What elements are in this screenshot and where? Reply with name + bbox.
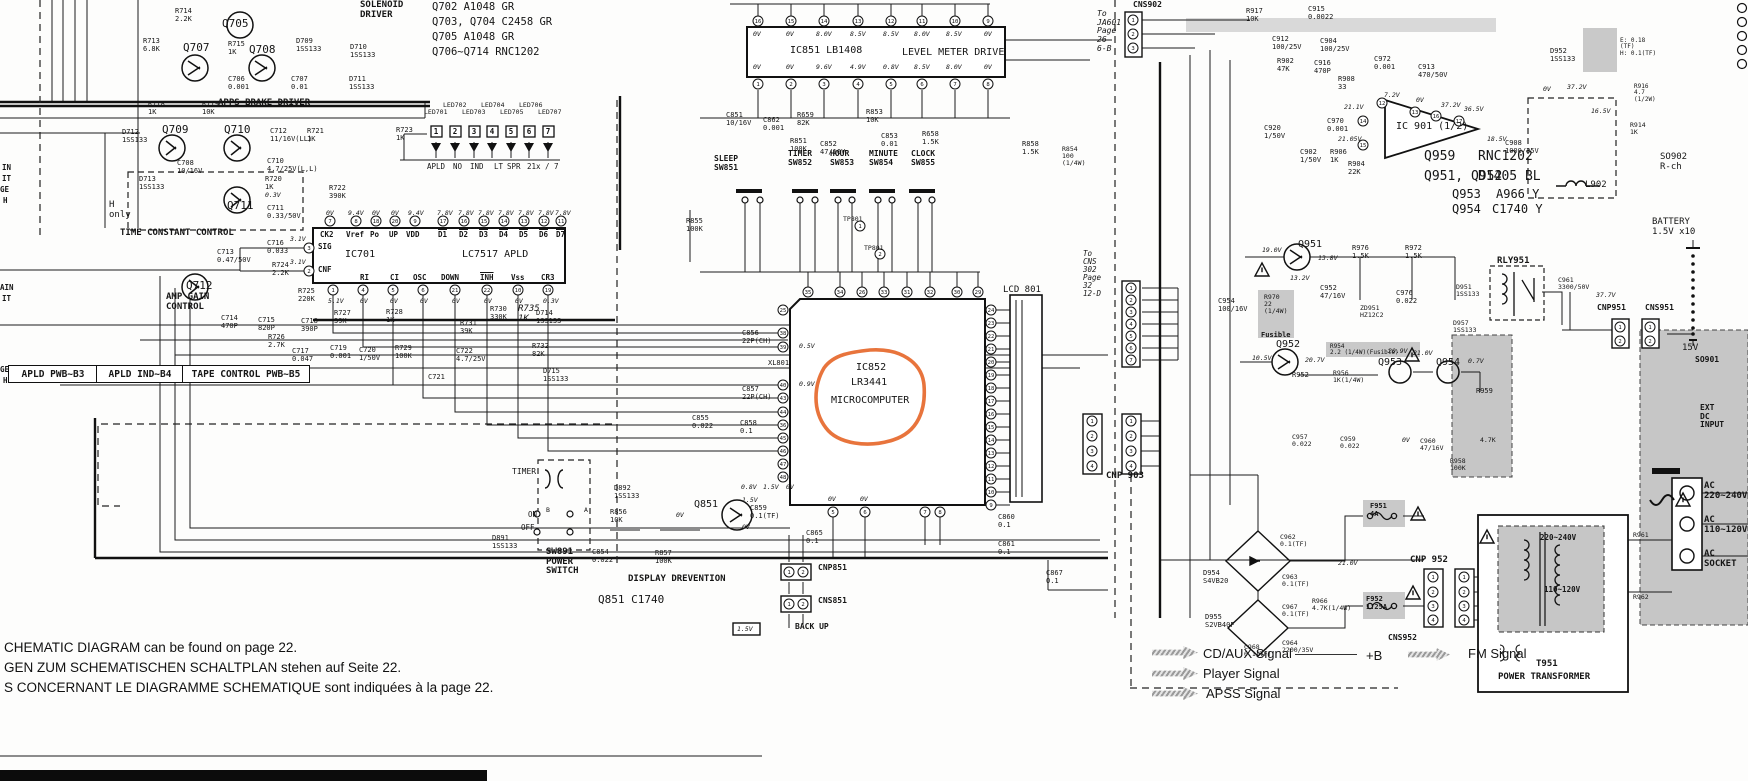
part-label: CNP 903 xyxy=(1106,472,1144,482)
svg-text:13: 13 xyxy=(1412,110,1419,116)
part-label: B xyxy=(546,507,550,514)
part-label: C960 47/16V xyxy=(1420,438,1443,452)
svg-text:1: 1 xyxy=(1129,286,1132,292)
part-label: C857 22P(CH) xyxy=(742,386,772,401)
part-label: 8.5V xyxy=(946,31,962,38)
part-label: D955 S2VB40F xyxy=(1205,614,1235,629)
svg-text:5: 5 xyxy=(391,288,394,294)
part-label: E: 0.18 (TF) H: 0.1(TF) xyxy=(1620,38,1656,57)
part-label: F951 4A xyxy=(1370,503,1387,518)
part-label: LC7517 APLD xyxy=(462,250,528,261)
part-label: 0V xyxy=(984,31,992,38)
svg-text:6: 6 xyxy=(920,82,923,88)
svg-text:26: 26 xyxy=(859,290,866,296)
part-label: 1.5V xyxy=(763,484,779,491)
svg-text:40: 40 xyxy=(780,383,787,389)
part-label: Q953 xyxy=(1378,358,1402,369)
bottom-black-bar xyxy=(0,770,487,781)
part-label: D710 1SS133 xyxy=(350,44,375,59)
part-label: C976 0.022 xyxy=(1396,290,1417,305)
part-label: TIME CONSTANT CONTROL xyxy=(120,229,234,239)
part-label: R916 4.7 (1/2W) xyxy=(1634,84,1656,103)
part-label: D2 xyxy=(459,231,468,239)
part-label: 110~120V xyxy=(1544,586,1580,594)
pwb-label-apld: APLD PWB~B3 xyxy=(8,365,98,383)
part-label: R972 1.5K xyxy=(1405,245,1422,260)
part-label: Q705 A1048 GR xyxy=(432,32,514,43)
part-label: EXT DC INPUT xyxy=(1700,404,1724,430)
part-label: 9.4V xyxy=(408,210,424,217)
part-label: SPR xyxy=(507,163,521,171)
part-label: Q709 xyxy=(162,124,189,136)
part-label: Q706~Q714 RNC1202 xyxy=(432,47,539,58)
part-label: C711 0.33/50V xyxy=(267,205,301,220)
part-label: 8.0V xyxy=(816,31,832,38)
part-label: IC701 xyxy=(345,250,375,261)
part-label: 20.7V xyxy=(1305,357,1325,364)
part-label: 0V xyxy=(1416,97,1424,104)
svg-text:2: 2 xyxy=(789,82,792,88)
part-label: C706 0.001 xyxy=(228,76,249,91)
svg-text:32: 32 xyxy=(927,290,934,296)
part-label: LCD 801 xyxy=(1003,286,1041,296)
svg-text:16: 16 xyxy=(461,219,468,225)
svg-text:1: 1 xyxy=(787,602,790,608)
part-label: R720 1K xyxy=(265,176,282,191)
svg-text:2: 2 xyxy=(1648,339,1651,345)
part-label: 37.7V xyxy=(1596,292,1616,299)
lcd801-box xyxy=(1010,295,1042,502)
rly951-symbol xyxy=(1502,272,1534,316)
svg-text:3: 3 xyxy=(472,127,477,136)
part-label: Q851 xyxy=(694,500,718,511)
part-label: ON xyxy=(528,511,537,519)
part-label: / 7 xyxy=(545,163,559,171)
part-label: T951 xyxy=(1536,660,1558,670)
part-label: R854 100 (1/4W) xyxy=(1062,146,1085,167)
svg-text:10: 10 xyxy=(952,19,959,25)
part-label: LED705 xyxy=(500,109,523,116)
svg-text:16: 16 xyxy=(755,19,762,25)
part-label: 0V xyxy=(326,210,334,217)
part-label: C718 390P xyxy=(301,318,318,333)
part-label: TP801 xyxy=(843,216,863,223)
part-label: R718 1K xyxy=(148,101,165,116)
part-label: 7.8V xyxy=(498,210,514,217)
part-label: C912 100/25V xyxy=(1272,36,1302,51)
part-label: C714 470P xyxy=(221,315,238,330)
pwb-label-tape: TAPE CONTROL PWB~B5 xyxy=(182,365,310,383)
part-label: 0.3V xyxy=(265,192,281,199)
part-label: R914 1K xyxy=(1630,122,1646,136)
part-label: IC 901 (1/2) xyxy=(1396,122,1468,133)
svg-text:10: 10 xyxy=(988,490,995,496)
legend-player: Player Signal xyxy=(1203,666,1280,681)
part-label: C902 1/50V xyxy=(1300,149,1321,164)
part-label: UP xyxy=(389,231,398,239)
part-label: CLOCK SW855 xyxy=(911,150,935,167)
part-label: 7.8V xyxy=(437,210,453,217)
part-label: C855 0.022 xyxy=(692,415,713,430)
part-label: Q851 C1740 xyxy=(598,594,664,606)
part-label: CNS952 xyxy=(1388,634,1417,643)
svg-text:25: 25 xyxy=(780,308,787,314)
part-label: 0V xyxy=(391,210,399,217)
part-label: 8.0V xyxy=(914,31,930,38)
part-label: 4.7K xyxy=(1480,437,1496,444)
part-label: C1740 Y xyxy=(1492,203,1543,216)
part-label: 21.1V xyxy=(1344,104,1364,111)
part-label: 0V xyxy=(390,298,398,305)
svg-text:34: 34 xyxy=(837,290,844,296)
part-label: 7.8V xyxy=(478,210,494,217)
part-label: CNF xyxy=(318,266,332,274)
part-label: 8.5V xyxy=(850,31,866,38)
part-label: IND xyxy=(470,163,484,171)
part-label: D957 1SS133 xyxy=(1453,320,1476,334)
part-label: R713 6.8K xyxy=(143,38,160,53)
svg-text:2: 2 xyxy=(801,570,804,576)
part-label: C856 22P(CH) xyxy=(742,330,772,345)
part-label: 1.5V xyxy=(742,497,758,504)
part-label: C708 10/16V xyxy=(177,160,202,175)
part-label: L902 xyxy=(1585,181,1607,191)
part-label: 0V xyxy=(860,496,868,503)
part-label: D712 1SS133 xyxy=(122,129,147,144)
part-label: Q951 xyxy=(1298,240,1322,251)
svg-text:5: 5 xyxy=(509,127,514,136)
part-label: C904 100/25V xyxy=(1320,38,1350,53)
svg-text:6: 6 xyxy=(863,510,866,516)
part-label: C915 0.0022 xyxy=(1308,6,1333,21)
part-label: C970 0.001 xyxy=(1327,118,1348,133)
part-label: R722 390K xyxy=(329,185,346,200)
part-label: C858 0.1 xyxy=(740,420,757,435)
svg-text:1: 1 xyxy=(1462,575,1465,581)
part-label: D951 1SS133 xyxy=(1456,284,1479,298)
part-label: 8.0V xyxy=(946,64,962,71)
part-label: D7 xyxy=(556,231,565,239)
svg-text:33: 33 xyxy=(881,290,888,296)
part-label: 8.5V xyxy=(914,64,930,71)
svg-text:2: 2 xyxy=(1090,434,1093,440)
part-label: Q705 xyxy=(222,18,249,30)
part-label: APPS BRAKE DRIVER xyxy=(218,99,310,109)
part-label: R902 47K xyxy=(1277,58,1294,73)
part-label: C916 470P xyxy=(1314,60,1331,75)
part-label: 0V xyxy=(786,64,794,71)
part-label: D715 1SS133 xyxy=(543,368,568,383)
part-label: R904 22K xyxy=(1348,161,1365,176)
svg-text:1: 1 xyxy=(1129,419,1132,425)
svg-text:13: 13 xyxy=(988,451,995,457)
svg-text:2: 2 xyxy=(1431,590,1434,596)
part-label: 7.8V xyxy=(518,210,534,217)
part-label: R724 2.2K xyxy=(272,262,289,277)
part-label: 7.8V xyxy=(458,210,474,217)
part-label: 13.8V xyxy=(1318,255,1338,262)
svg-text:7: 7 xyxy=(953,82,956,88)
svg-text:5: 5 xyxy=(831,510,834,516)
part-label: 36.5V xyxy=(1464,106,1484,113)
part-label: R906 1K xyxy=(1330,149,1347,164)
part-label: POWER TRANSFORMER xyxy=(1498,673,1590,683)
part-label: R952 xyxy=(1292,372,1309,380)
part-label: LED703 xyxy=(462,109,485,116)
part-label: 15V xyxy=(1682,344,1698,354)
svg-text:7: 7 xyxy=(546,127,551,136)
svg-text:1: 1 xyxy=(1431,575,1434,581)
svg-text:21: 21 xyxy=(452,288,459,294)
part-label: LED701 xyxy=(424,109,447,116)
part-label: R962 xyxy=(1633,594,1649,601)
part-label: H xyxy=(3,377,8,385)
part-label: D954 S4VB20 xyxy=(1203,570,1228,585)
svg-text:2: 2 xyxy=(307,269,310,275)
part-label: 0.9V xyxy=(799,381,815,388)
svg-text:1: 1 xyxy=(756,82,759,88)
part-label: Q952 xyxy=(1276,340,1300,351)
part-label: TP801 xyxy=(864,245,884,252)
part-label: Q707 xyxy=(183,42,210,54)
svg-text:2: 2 xyxy=(1131,32,1134,38)
part-label: D891 1SS133 xyxy=(492,535,517,550)
part-label: R715 1K xyxy=(228,41,245,56)
part-label: APLD xyxy=(427,163,445,171)
svg-text:3: 3 xyxy=(1129,449,1132,455)
svg-text:39: 39 xyxy=(780,345,787,351)
part-label: NO xyxy=(453,163,462,171)
svg-text:12: 12 xyxy=(541,219,548,225)
part-label: R961 xyxy=(1633,532,1649,539)
svg-text:22: 22 xyxy=(484,288,491,294)
part-label: 21.0V xyxy=(1338,560,1358,567)
part-label: R729 100K xyxy=(395,345,412,360)
svg-text:17: 17 xyxy=(988,399,995,405)
part-label: AC SOCKET xyxy=(1704,550,1737,569)
part-label: 0V xyxy=(753,64,761,71)
part-label: R908 33 xyxy=(1338,76,1355,91)
part-label: 21.05V xyxy=(1338,136,1361,143)
part-label: Q702 A1048 GR xyxy=(432,2,514,13)
part-label: ZD951 HZ12C2 xyxy=(1360,305,1383,319)
part-label: DISPLAY DREVENTION xyxy=(628,575,726,585)
part-label: C867 0.1 xyxy=(1046,570,1063,585)
part-label: R730 330K xyxy=(490,306,507,321)
part-label: 0V xyxy=(676,512,684,519)
part-label: C961 3300/50V xyxy=(1558,277,1589,291)
part-label: CNP 952 xyxy=(1410,556,1448,566)
part-label: MICROCOMPUTER xyxy=(831,396,909,407)
part-label: 0.7V xyxy=(1468,358,1484,365)
part-label: D6 xyxy=(539,231,548,239)
part-label: R970 22 (1/4W) xyxy=(1264,294,1287,315)
part-label: 1.5V xyxy=(737,626,753,633)
part-label: 21x xyxy=(527,163,541,171)
part-label: To CNS 302 Page 32 12-D xyxy=(1083,250,1101,299)
svg-text:31: 31 xyxy=(904,290,911,296)
part-label: H only xyxy=(109,201,131,220)
part-label: 0V xyxy=(753,31,761,38)
part-label: 0V xyxy=(742,524,750,531)
part-label: R725 220K xyxy=(298,288,315,303)
part-label: R856 10K xyxy=(610,509,627,524)
part-label: AMP GAIN CONTROL xyxy=(166,293,209,312)
part-label: IC851 LB1408 xyxy=(790,46,862,57)
part-label: C722 4.7/25V xyxy=(456,348,486,363)
part-label: Q959 xyxy=(1424,150,1455,164)
part-label: LEVEL METER DRIVE xyxy=(902,48,1004,59)
part-label: D1405 BL xyxy=(1478,170,1541,184)
part-label: CK2 xyxy=(320,231,334,239)
svg-text:3: 3 xyxy=(1090,449,1093,455)
schematic-page: 1615141312111091234567878182091716151413… xyxy=(0,0,1748,781)
svg-text:6: 6 xyxy=(527,127,532,136)
part-label: 21.0V xyxy=(1413,350,1433,357)
part-label: C851 10/16V xyxy=(726,112,751,127)
svg-text:7: 7 xyxy=(328,219,331,225)
part-label: C860 0.1 xyxy=(998,514,1015,529)
part-label: R726 2.7K xyxy=(268,334,285,349)
legend-plus-b: +B xyxy=(1366,648,1382,663)
part-label: R976 1.5K xyxy=(1352,245,1369,260)
part-label: 37.2V xyxy=(1441,102,1461,109)
part-label: 0.3V xyxy=(543,298,559,305)
part-label: CNS951 xyxy=(1645,304,1674,313)
legend-apss: APSS Signal xyxy=(1206,686,1280,701)
part-label: D4 xyxy=(499,231,508,239)
note-french: S CONCERNANT LE DIAGRAMME SCHEMATIQUE so… xyxy=(4,680,493,695)
part-label: 5.1V xyxy=(328,298,344,305)
part-label: C952 47/16V xyxy=(1320,285,1345,300)
svg-text:23: 23 xyxy=(988,321,995,327)
part-label: 37.2V xyxy=(1567,84,1587,91)
part-label: C721 xyxy=(428,374,445,382)
part-label: 0V xyxy=(484,298,492,305)
part-label: OSC xyxy=(413,274,427,282)
part-label: Q954 xyxy=(1452,203,1481,216)
part-label: R958 100K xyxy=(1450,458,1466,472)
svg-text:15: 15 xyxy=(1360,143,1367,149)
svg-text:1: 1 xyxy=(858,224,861,230)
part-label: Q712 xyxy=(186,280,213,292)
svg-text:11: 11 xyxy=(919,19,926,25)
svg-text:46: 46 xyxy=(780,449,787,455)
svg-text:12: 12 xyxy=(888,19,895,25)
part-label: C719 0.001 xyxy=(330,345,351,360)
part-label: R721 1K xyxy=(307,128,324,143)
part-label: C713 0.47/50V xyxy=(217,249,251,264)
part-label: 10.5V xyxy=(1252,355,1272,362)
part-label: RI xyxy=(360,274,369,282)
part-label: D713 1SS133 xyxy=(139,176,164,191)
part-label: IC852 xyxy=(856,363,886,374)
part-label: Q710 xyxy=(224,124,251,136)
part-label: SIG xyxy=(318,243,332,251)
part-label: R731 39K xyxy=(460,320,477,335)
part-label: SO901 xyxy=(1695,356,1719,365)
part-label: D1 xyxy=(438,231,447,239)
part-label: Q953 xyxy=(1452,188,1481,201)
part-label: R732 82K xyxy=(532,343,549,358)
part-label: AIN xyxy=(0,284,14,292)
part-label: R723 1K xyxy=(396,127,413,142)
part-label: C972 0.001 xyxy=(1374,56,1395,71)
part-label: C707 0.01 xyxy=(291,76,308,91)
part-label: OFF xyxy=(521,524,535,532)
part-label: 20.9V xyxy=(1388,348,1408,355)
part-label: 0V xyxy=(372,210,380,217)
part-label: 7.8V xyxy=(538,210,554,217)
battery-symbol xyxy=(1686,248,1700,340)
part-label: MINUTE SW854 xyxy=(869,150,898,167)
svg-text:20: 20 xyxy=(392,219,399,225)
part-label: C854 0.022 xyxy=(592,549,613,564)
svg-text:43: 43 xyxy=(780,396,787,402)
legend-cd-aux: CD/AUX Signal xyxy=(1203,646,1292,661)
part-label: SOLENOID DRIVER xyxy=(360,1,403,20)
svg-text:5: 5 xyxy=(1129,334,1132,340)
sw891-box xyxy=(538,460,590,550)
svg-text:12: 12 xyxy=(1379,101,1386,107)
part-label: RNC1202 xyxy=(1478,150,1533,164)
edge-pins xyxy=(1738,4,1747,69)
part-label: 0V xyxy=(360,298,368,305)
part-label: BATTERY 1.5V x10 xyxy=(1652,218,1695,237)
part-label: 0V xyxy=(984,64,992,71)
svg-text:29: 29 xyxy=(975,290,982,296)
part-label: Q708 xyxy=(249,44,276,56)
part-label: CNP951 xyxy=(1597,304,1626,313)
part-label: INH xyxy=(480,274,494,282)
part-label: SW891 POWER SWITCH xyxy=(546,548,579,577)
part-label: A966 Y xyxy=(1496,188,1539,201)
part-label: Q711 xyxy=(227,200,254,212)
svg-text:5: 5 xyxy=(889,82,892,88)
part-label: C859 0.1(TF) xyxy=(750,505,780,520)
svg-text:18: 18 xyxy=(988,386,995,392)
svg-text:13: 13 xyxy=(521,219,528,225)
part-label: D5 xyxy=(519,231,528,239)
svg-text:2: 2 xyxy=(1618,339,1621,345)
part-label: SLEEP SW851 xyxy=(714,155,738,172)
part-label: TIMER SW852 xyxy=(788,150,812,167)
part-label: IN xyxy=(2,164,11,172)
part-label: C962 0.1(TF) xyxy=(1280,534,1307,548)
legend-divider-line xyxy=(1295,654,1357,655)
part-label: R853 10K xyxy=(866,109,883,124)
part-label: 0V xyxy=(786,31,794,38)
part-label: C720 1/50V xyxy=(359,347,380,362)
part-label: H xyxy=(3,197,8,205)
part-label: C913 470/50V xyxy=(1418,64,1448,79)
part-label: F952 1.25A xyxy=(1366,596,1387,611)
part-label: 8.5V xyxy=(883,31,899,38)
part-label: R728 1K xyxy=(386,309,403,324)
part-label: R959 xyxy=(1476,388,1493,396)
part-label: C920 1/50V xyxy=(1264,125,1285,140)
svg-text:7: 7 xyxy=(1129,358,1132,364)
part-label: CNP851 xyxy=(818,564,847,573)
part-label: C712 11/16V(LL) xyxy=(270,128,312,143)
part-label: LED707 xyxy=(538,109,561,116)
part-label: D711 1SS133 xyxy=(349,76,374,91)
svg-text:2: 2 xyxy=(1462,590,1465,596)
part-label: C967 0.1(TF) xyxy=(1282,604,1309,618)
legend-fm: FM Signal xyxy=(1468,646,1527,661)
svg-text:19: 19 xyxy=(988,373,995,379)
svg-text:36: 36 xyxy=(780,423,787,429)
